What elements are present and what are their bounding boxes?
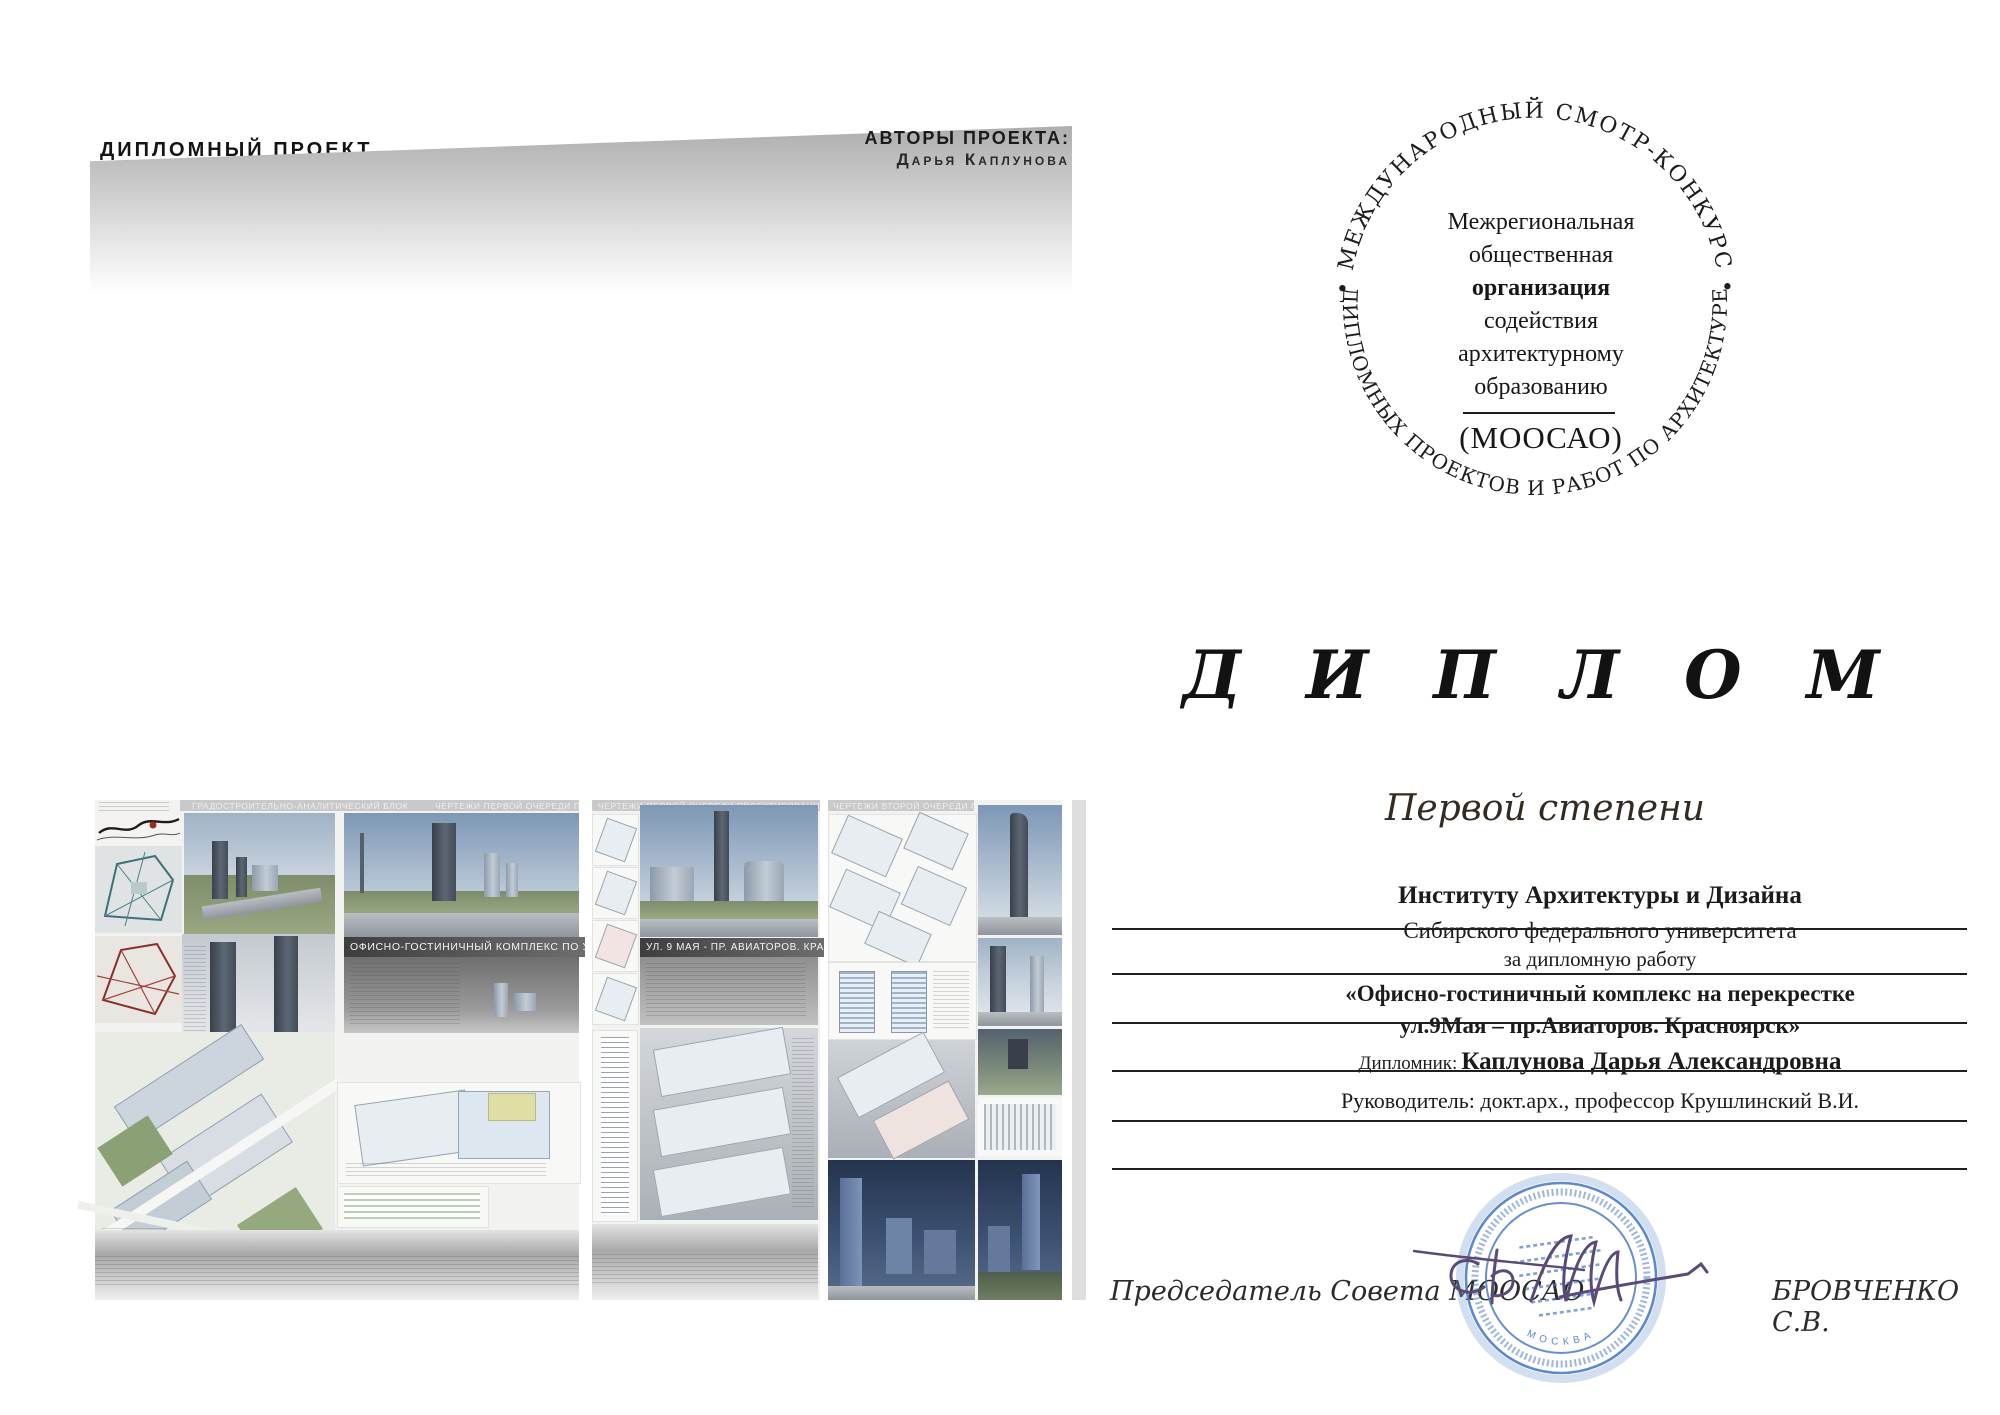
for-work-line: за дипломную работу: [1200, 947, 2000, 972]
site-map-red: [95, 936, 182, 1023]
section-drawing: [337, 1186, 489, 1228]
form-line-1: [1112, 928, 1967, 930]
panorama-photo-1: [95, 1230, 579, 1300]
org-line-4: содействия: [1306, 305, 1776, 338]
map-red-sketch: [95, 936, 182, 1023]
spec-table-block: [344, 957, 579, 1033]
section-header-phase1: ЧЕРТЕЖИ ПЕРВОЙ ОЧЕРЕДИ ПРОЕКТИРОВАНИЯ: [435, 801, 579, 811]
org-line-6: образованию: [1306, 371, 1776, 404]
floorplan-yellow-zone: [488, 1093, 536, 1121]
render-col-night: [978, 1160, 1062, 1300]
floorplan-shape-1: [354, 1090, 474, 1167]
render-col-night-low: [988, 1226, 1010, 1272]
tilted-plans-tile: [828, 814, 977, 962]
seal-org-name: Межрегиональная общественная организация…: [1306, 206, 1776, 404]
tilted-plan-5: [864, 911, 932, 967]
street-tower-2: [484, 853, 500, 897]
degree-subtitle: Первой степени: [1145, 788, 1945, 829]
street-tower-3: [506, 863, 518, 897]
render-col-parking-grid: [984, 1104, 1056, 1150]
podium-building: [744, 861, 784, 901]
street-tower-main: [432, 823, 456, 901]
org-line-1: Межрегиональная: [1306, 206, 1776, 239]
recipient-line-2: Сибирского федерального университета: [1200, 918, 2000, 944]
aerial-tower-1: [212, 841, 228, 899]
stack-notes: [792, 1038, 814, 1208]
map-ink-sketch: [95, 813, 182, 845]
poster-panel-2: ЧЕРТЕЖИ ПЕРВОЙ ОЧЕРЕДИ ПРОЕКТИРОВАНИЯ УЛ…: [592, 800, 820, 1300]
street-trees-2: [640, 901, 818, 919]
signature-initial-c: [1451, 1260, 1484, 1292]
work-title-line-1: «Офисно-гостиничный комплекс на перекрес…: [1200, 981, 2000, 1007]
section-header-phase2: ЧЕРТЕЖИ ВТОРОЙ ОЧЕРЕДИ ПРОЕКТИРОВАНИЯ: [833, 801, 974, 811]
night-tower-2: [886, 1218, 912, 1274]
small-plan-2: [592, 867, 639, 919]
supervisor-line: Руководитель: докт.арх., профессор Крушл…: [1200, 1088, 2000, 1114]
render-col-parking: [978, 1098, 1062, 1156]
poster-panel-1: ГРАДОСТРОИТЕЛЬНО-АНАЛИТИЧЕСКИЙ БЛОК ЧЕРТ…: [95, 800, 579, 1300]
street-road-2: [640, 919, 818, 937]
render-col-tower-shape: [1010, 813, 1028, 917]
floorplans-tile: [337, 1082, 581, 1184]
aerial-podium: [252, 865, 278, 891]
spec-table-text: [350, 963, 460, 1025]
render-col-t2: [1030, 956, 1044, 1012]
night-tower-1: [840, 1178, 862, 1288]
panorama-texture-1: [95, 1256, 579, 1286]
elevation-left: [839, 971, 875, 1033]
street-trees: [344, 891, 579, 915]
render-col-tower: [978, 805, 1062, 935]
render-col-ground: [978, 917, 1062, 935]
map-teal-sketch: [95, 846, 182, 933]
small-plan-4: [592, 973, 639, 1025]
small-plan-3: [592, 920, 639, 972]
seal-abbr: (МООСАО): [1306, 421, 1776, 454]
scanned-diploma-page: { "left_board": { "project_type": "ДИПЛО…: [0, 0, 2000, 1415]
chairman-name: БРОВЧЕНКО С.В.: [1772, 1276, 2000, 1338]
small-plan-shape-2: [595, 871, 637, 916]
form-line-3: [1112, 1022, 1967, 1024]
authors-label: АВТОРЫ ПРОЕКТА:: [670, 128, 1070, 149]
scan-edge-sliver: [1072, 800, 1086, 1300]
panorama-texture-2: [592, 1254, 818, 1284]
render-col-t1: [990, 946, 1006, 1012]
org-line-3: организация: [1306, 272, 1776, 305]
tilted-plan-4: [901, 866, 967, 926]
diploma-title: Д И П Л О М: [1140, 636, 1940, 714]
parking-plans-tile: [828, 1040, 975, 1158]
tilted-plan-2: [903, 812, 969, 871]
spec-table-block-2: [640, 957, 818, 1025]
site-map-ink: [95, 813, 182, 845]
night-street: [828, 1286, 975, 1300]
section-floors: [344, 1193, 480, 1219]
stamp-city-text: МОСКВА: [1525, 1328, 1597, 1348]
small-plan-shape-1: [595, 818, 637, 863]
panorama-photo-2: [592, 1224, 818, 1300]
work-title-line-2: ул.9Мая – пр.Авиаторов. Красноярск»: [1200, 1013, 2000, 1039]
aerial-tower-2: [236, 857, 247, 897]
seal-divider-rule: [1463, 412, 1615, 414]
small-plan-1: [592, 814, 639, 866]
signature-initial-b: [1492, 1250, 1513, 1303]
poster-panel-3: ЧЕРТЕЖИ ВТОРОЙ ОЧЕРЕДИ ПРОЕКТИРОВАНИЯ: [828, 800, 1062, 1300]
stack-plan-1: [653, 1027, 791, 1097]
left-building: [650, 867, 694, 901]
tower-street-render: [640, 805, 818, 937]
street-lamp-post: [360, 833, 364, 893]
org-line-2: общественная: [1306, 239, 1776, 272]
signature-underline: [1414, 1251, 1584, 1270]
chairman-signature: [1400, 1220, 1720, 1330]
render-col-aerial-tower: [1008, 1039, 1028, 1069]
render-col-bridge: [978, 1012, 1062, 1026]
site-map-teal: [95, 846, 182, 933]
render-col-night-park: [978, 1272, 1062, 1300]
night-tower-3: [924, 1230, 956, 1274]
render-col-two-towers: [978, 938, 1062, 1026]
aerial-render: [184, 813, 335, 935]
render-col-night-tower: [1022, 1174, 1040, 1270]
render-col-aerial: [978, 1029, 1062, 1095]
night-render: [828, 1160, 975, 1300]
section-header-strip-3: ЧЕРТЕЖИ ВТОРОЙ ОЧЕРЕДИ ПРОЕКТИРОВАНИЯ: [828, 800, 974, 811]
tower-section-tall: [592, 1030, 638, 1222]
spec-table-text-2: [646, 963, 806, 1019]
main-skyscraper: [714, 811, 729, 915]
elevation-notes: [933, 971, 969, 1031]
stack-plan-3: [653, 1147, 791, 1217]
elevation-right: [891, 971, 927, 1033]
street-render: [344, 813, 579, 937]
form-line-5: [1112, 1120, 1967, 1122]
project-banner-1: ОФИСНО-ГОСТИНИЧНЫЙ КОМПЛЕКС ПО УЛ. 9 МАЯ…: [344, 937, 585, 957]
author-name: Дарья Каплунова: [670, 150, 1070, 170]
small-plan-shape-4: [595, 977, 637, 1022]
section-header-strip-1: ГРАДОСТРОИТЕЛЬНО-АНАЛИТИЧЕСКИЙ БЛОК ЧЕРТ…: [180, 800, 579, 811]
small-plan-shape-3: [595, 924, 637, 969]
spec-mini-block: [514, 993, 536, 1011]
form-line-4: [1112, 1070, 1967, 1072]
tilted-plan-1: [831, 815, 903, 878]
stack-plan-2: [653, 1087, 791, 1157]
plans-stack-tile: [640, 1028, 818, 1220]
section-header-analytic: ГРАДОСТРОИТЕЛЬНО-АНАЛИТИЧЕСКИЙ БЛОК: [192, 801, 408, 811]
spec-mini-tower: [494, 983, 508, 1017]
form-line-2: [1112, 973, 1967, 975]
elevations-tile: [828, 962, 977, 1040]
tower-section-floors: [601, 1037, 629, 1215]
street-road: [344, 913, 579, 937]
twin-towers-notes: [184, 946, 206, 1036]
recipient-line-1: Институту Архитектуры и Дизайна: [1200, 882, 2000, 910]
floorplan-notes: [346, 1163, 546, 1177]
org-line-5: архитектурному: [1306, 338, 1776, 371]
project-banner-2: УЛ. 9 МАЯ - ПР. АВИАТОРОВ. КРАСНОЯРСК.: [640, 938, 824, 957]
signature-scrawl: [1531, 1236, 1621, 1302]
